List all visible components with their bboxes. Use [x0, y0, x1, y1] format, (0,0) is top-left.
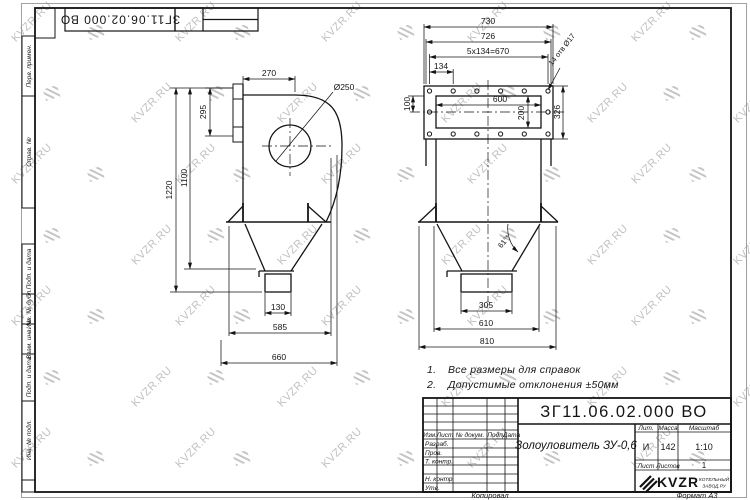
value-lit: И: [643, 442, 649, 452]
margin-column: Перв. примен. Справ. № Подп. и дата Инв.…: [22, 36, 35, 492]
note-1-num: 1.: [427, 364, 436, 376]
dim-585: 585: [273, 322, 287, 332]
dim-200: 200: [516, 106, 526, 120]
kvzr-logo-icon: [640, 476, 657, 492]
drawing-canvas: ЗГ11.06.02.000 ВО Перв. примен. Справ. №…: [0, 0, 750, 500]
footer-format: Формат А3: [676, 491, 718, 500]
row-razrab: Разраб.: [425, 440, 449, 448]
header-izm: Изм.: [423, 432, 437, 439]
dim-dia250: Ø250: [334, 82, 355, 92]
note-2-num: 2.: [426, 379, 436, 391]
dim-610: 610: [479, 318, 493, 328]
drawing-sheet: KVZR.RUKVZR.RUKVZR.RUKVZR.RUKVZR.RUKVZR.…: [0, 0, 750, 500]
dim-670: 5x134=670: [467, 46, 510, 56]
dim-726: 726: [481, 31, 495, 41]
header-list2: Лист: [637, 463, 655, 470]
header-data: Дата: [502, 432, 521, 439]
title-block: ЗГ11.06.02.000 ВО Золоуловитель ЗУ-0,6 И…: [423, 398, 731, 492]
margin-vzam-inv: Взам. инв. №: [26, 319, 33, 359]
dim-326: 326: [552, 105, 562, 119]
dim-1100: 1100: [179, 169, 189, 188]
margin-podp-data-2: Подп. и дата: [25, 356, 33, 397]
note-2-text: Допустимые отклонения ±50мм: [447, 379, 619, 391]
header-listov: Листов: [655, 463, 680, 470]
margin-inv-podl: Инв. № подл.: [25, 420, 33, 461]
dim-angle-61: 61°*: [496, 233, 512, 250]
company-sub-line2: ЗАВОД.РУ: [702, 484, 726, 490]
company-logo-text: KVZR: [657, 474, 699, 490]
dim-295: 295: [198, 105, 208, 119]
right-view-centerlines: [410, 80, 566, 302]
right-view: 730 726 5x134=670 134 100 600 200 326 14…: [402, 16, 577, 350]
row-n-kontr: Н. контр.: [425, 476, 455, 483]
margin-sprav-n: Справ. №: [26, 137, 33, 167]
dim-100: 100: [402, 97, 412, 111]
dim-305: 305: [479, 300, 493, 310]
top-stamp: ЗГ11.06.02.000 ВО: [60, 8, 258, 31]
left-view: 270 295 1220 1100 Ø250 130 585 660: [164, 68, 355, 366]
row-prov: Пров.: [425, 450, 442, 457]
dim-134: 134: [434, 61, 448, 71]
value-masshtab: 1:10: [695, 442, 713, 452]
dim-810: 810: [480, 336, 494, 346]
row-t-kontr: Т. контр.: [425, 459, 453, 466]
value-listov: 1: [702, 461, 707, 470]
dim-270: 270: [262, 68, 276, 78]
header-lit: Лит.: [637, 425, 653, 432]
dim-600: 600: [493, 94, 507, 104]
dim-730: 730: [481, 16, 495, 26]
header-massa: Масса: [658, 425, 678, 432]
dim-1220: 1220: [164, 180, 174, 199]
note-1-text: Все размеры для справок: [448, 364, 581, 376]
footer-copied: Копировал: [471, 491, 509, 500]
header-masshtab: Масштаб: [689, 424, 720, 432]
margin-perv-primen: Перв. примен.: [26, 44, 33, 87]
value-massa: 142: [660, 442, 675, 452]
header-list: Лист: [436, 432, 454, 439]
notes: 1. Все размеры для справок 2. Допустимые…: [426, 364, 619, 391]
titleblock-product-name: Золоуловитель ЗУ-0,6: [515, 440, 637, 452]
margin-podp-data-1: Подп. и дата: [25, 248, 33, 289]
stamp-doc-number: ЗГ11.06.02.000 ВО: [60, 13, 180, 27]
dim-660: 660: [272, 352, 286, 362]
titleblock-doc-number: ЗГ11.06.02.000 ВО: [540, 403, 707, 421]
company-sub-line1: КОТЕЛЬНЫЙ: [699, 475, 730, 483]
left-view-dimensions: [170, 76, 337, 366]
dim-130: 130: [271, 302, 285, 312]
header-n-dokum: № докум.: [456, 431, 485, 439]
row-utv: Утв.: [424, 485, 440, 492]
